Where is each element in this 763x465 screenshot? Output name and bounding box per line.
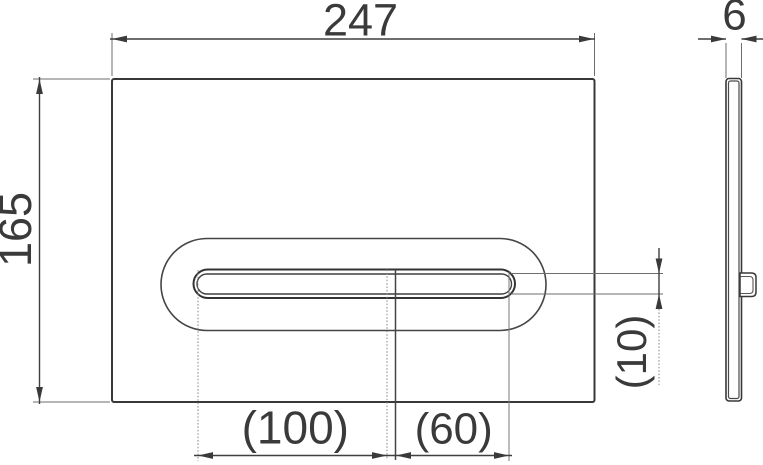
svg-text:(100): (100): [242, 402, 349, 454]
svg-text:(60): (60): [415, 405, 493, 454]
svg-text:247: 247: [323, 0, 398, 46]
svg-text:(10): (10): [608, 315, 655, 390]
svg-text:165: 165: [0, 192, 41, 267]
svg-text:6: 6: [722, 0, 746, 40]
